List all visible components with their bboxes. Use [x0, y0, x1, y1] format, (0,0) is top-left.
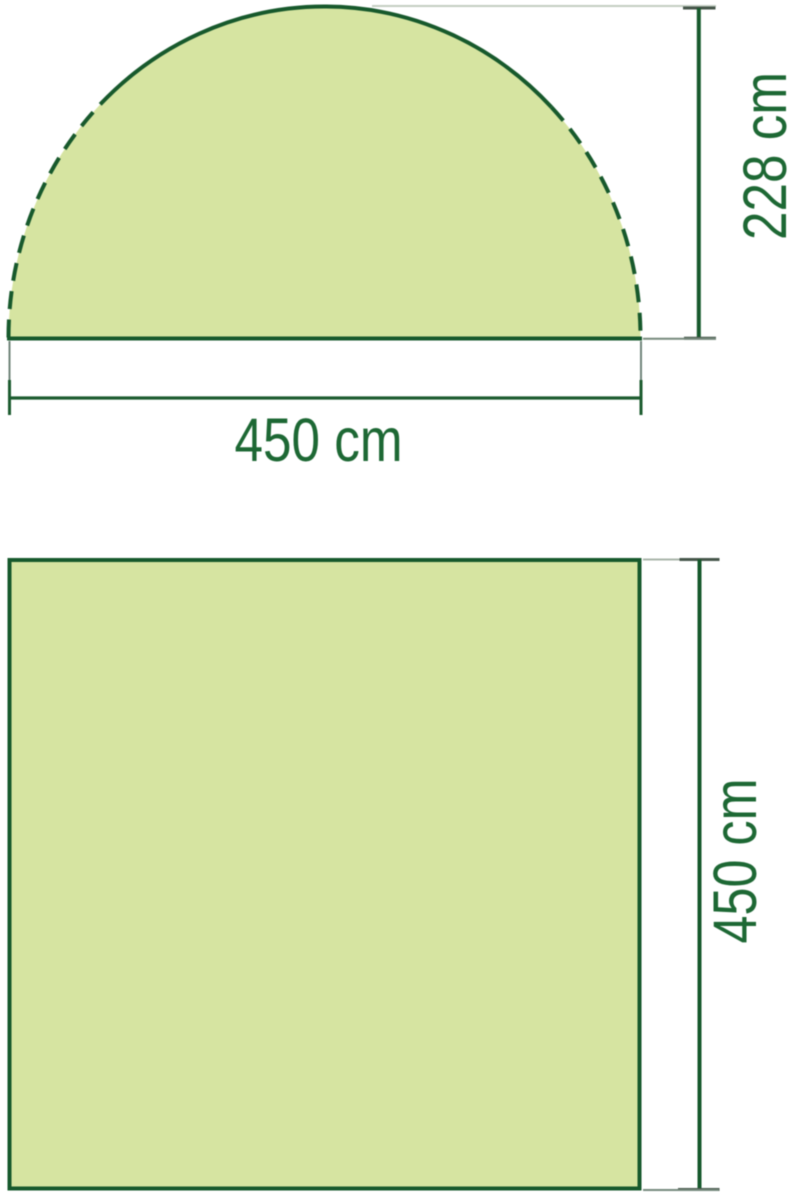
svg-text:228 cm: 228 cm: [731, 72, 799, 240]
svg-text:450 cm: 450 cm: [235, 406, 403, 474]
svg-text:450 cm: 450 cm: [701, 779, 769, 944]
